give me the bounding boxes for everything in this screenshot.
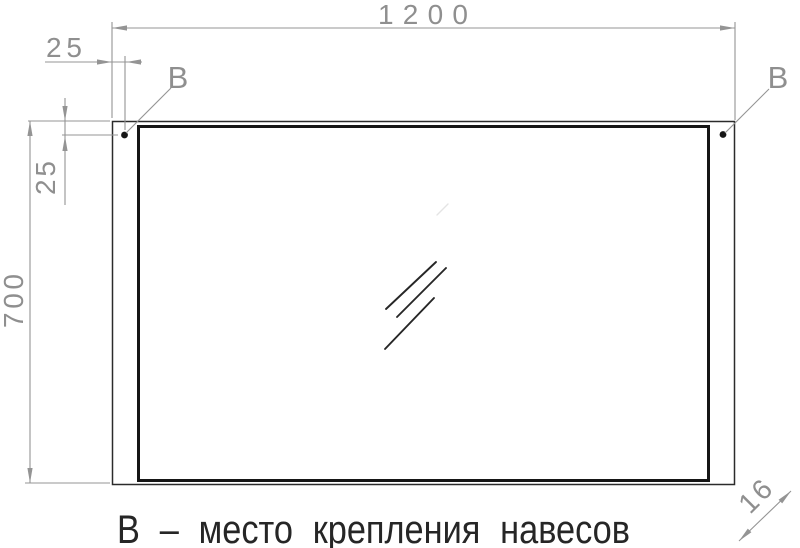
- technical-drawing-mirror: 1200 25 25 700 16 В В В – место креплени…: [0, 0, 800, 548]
- leader-line-right: [725, 89, 769, 133]
- dimension-width-value: 1200: [378, 0, 468, 30]
- dimension-mount-offset-horizontal: 25: [45, 32, 142, 65]
- arrowhead-thickness-lower: [739, 529, 751, 541]
- mount-label-left: В: [168, 60, 189, 95]
- dimension-overall-width: 1200: [112, 0, 735, 31]
- dimension-height-value: 700: [0, 274, 29, 328]
- dimension-offset-x-value: 25: [46, 32, 82, 63]
- glass-hatch-line-faint: [437, 204, 448, 215]
- arrowhead-offset-y-bottom: [62, 136, 67, 151]
- arrowhead-offset-x-right: [126, 59, 141, 64]
- caption-text: В – место крепления навесов: [117, 508, 630, 548]
- mount-label-right: В: [768, 60, 789, 95]
- dimension-thickness-value: 16: [732, 473, 778, 519]
- arrowhead-thickness-upper: [779, 491, 791, 503]
- glass-hatch-marks: [385, 204, 448, 349]
- arrowhead-offset-x-left: [97, 59, 112, 64]
- dimension-offset-y-value: 25: [30, 161, 61, 195]
- mirror-outer-outline: [113, 122, 735, 485]
- arrowhead-width-left: [112, 25, 127, 30]
- dimension-overall-height: 700: [0, 121, 33, 483]
- mirror-glass-outline: [139, 127, 709, 481]
- arrowhead-width-right: [720, 25, 735, 30]
- dimension-mount-offset-vertical: 25: [30, 98, 68, 205]
- arrowhead-height-bottom: [27, 468, 32, 483]
- mirror-body: [113, 122, 735, 485]
- arrowhead-offset-y-top: [62, 106, 67, 121]
- arrowhead-height-top: [27, 121, 32, 136]
- dimension-thickness: 16: [732, 473, 791, 541]
- extension-lines: [25, 22, 735, 483]
